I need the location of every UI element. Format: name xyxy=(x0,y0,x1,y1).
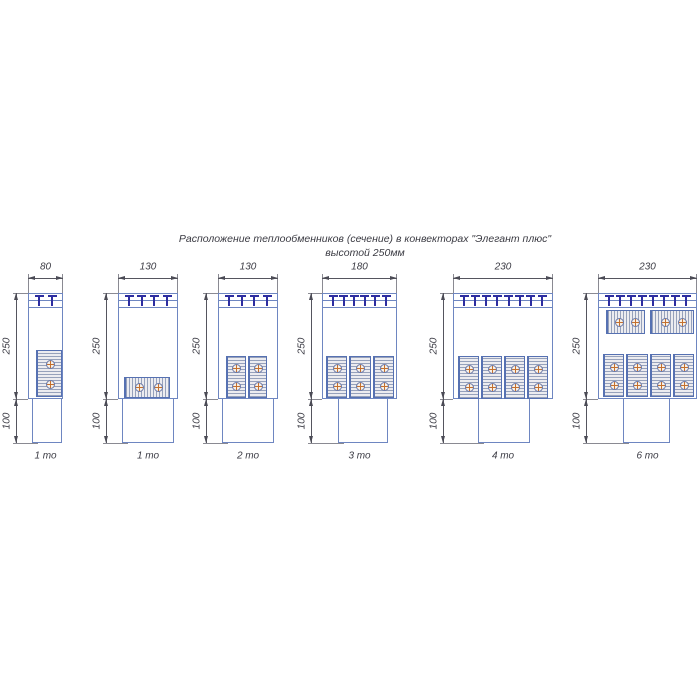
dimension-arrow xyxy=(118,276,125,280)
figure-caption: 1 то xyxy=(137,451,159,462)
duct-channel xyxy=(122,399,174,443)
grille-tee-icon xyxy=(137,295,146,306)
tube-circle xyxy=(615,318,624,327)
tube-circle xyxy=(46,380,55,389)
height-dimension-line xyxy=(16,293,17,399)
heat-exchanger-block xyxy=(606,310,645,334)
figure-caption: 6 то xyxy=(636,451,658,462)
tube-circle xyxy=(46,360,55,369)
extension-line xyxy=(440,443,484,444)
duct-height-label: 100 xyxy=(572,413,583,430)
dimension-arrow xyxy=(104,293,108,300)
grille-line xyxy=(454,307,552,308)
figure-caption: 1 то xyxy=(34,451,56,462)
drawing-title-line1: Расположение теплообменников (сечение) в… xyxy=(30,233,700,245)
dimension-arrow xyxy=(309,392,313,399)
grille-line xyxy=(219,307,277,308)
tube-circle xyxy=(380,382,389,391)
extension-line xyxy=(103,443,128,444)
tube-circle xyxy=(465,365,474,374)
heat-exchanger-block xyxy=(326,356,347,398)
grille-tee-icon xyxy=(682,295,691,306)
grille-tee-icon xyxy=(360,295,369,306)
grille-line xyxy=(599,307,696,308)
tube-circle xyxy=(633,381,642,390)
dimension-arrow xyxy=(322,276,329,280)
grille-tee-icon xyxy=(504,295,513,306)
dimension-arrow xyxy=(171,276,178,280)
width-dimension-label: 80 xyxy=(40,262,51,273)
height-dimension-line xyxy=(311,293,312,399)
width-dimension-line xyxy=(453,278,553,279)
dimension-arrow xyxy=(584,392,588,399)
tube-circle xyxy=(380,364,389,373)
width-dimension-label: 130 xyxy=(140,262,157,273)
duct-channel xyxy=(32,399,62,443)
heat-exchanger-block xyxy=(373,356,394,398)
dimension-arrow xyxy=(390,276,397,280)
heat-exchanger-block xyxy=(603,354,624,397)
width-dimension-line xyxy=(218,278,278,279)
grille-tee-icon xyxy=(339,295,348,306)
grille-tee-icon xyxy=(660,295,669,306)
tube-circle xyxy=(356,364,365,373)
grille-tee-icon xyxy=(605,295,614,306)
duct-channel xyxy=(338,399,388,443)
heat-exchanger-block xyxy=(248,356,268,398)
heat-exchanger-block xyxy=(626,354,647,397)
height-dimension-line xyxy=(586,293,587,399)
grille-tee-icon xyxy=(627,295,636,306)
dimension-arrow xyxy=(441,399,445,406)
grille-line xyxy=(323,307,396,308)
grille-tee-icon xyxy=(150,295,159,306)
grille-tee-icon xyxy=(350,295,359,306)
tube-circle xyxy=(610,381,619,390)
width-dimension-label: 230 xyxy=(495,262,512,273)
extension-line xyxy=(583,443,629,444)
grille-tee-icon xyxy=(35,295,44,306)
tube-circle xyxy=(488,365,497,374)
dimension-arrow xyxy=(218,276,225,280)
dimension-arrow xyxy=(309,436,313,443)
dimension-arrow xyxy=(309,399,313,406)
grille-tee-icon xyxy=(471,295,480,306)
grille-tee-icon xyxy=(225,295,234,306)
drawing-title-line2: высотой 250мм xyxy=(30,247,700,259)
dimension-arrow xyxy=(309,293,313,300)
heat-exchanger-block xyxy=(650,354,671,397)
tube-circle xyxy=(254,382,263,391)
grille-tee-icon xyxy=(263,295,272,306)
body-height-label: 250 xyxy=(572,338,583,355)
grille-tee-icon xyxy=(382,295,391,306)
tube-circle xyxy=(488,383,497,392)
dimension-arrow xyxy=(453,276,460,280)
grille-line xyxy=(29,307,62,308)
grille-tee-icon xyxy=(250,295,259,306)
extension-line xyxy=(308,443,344,444)
grille-tee-icon xyxy=(371,295,380,306)
duct-height-label: 100 xyxy=(297,413,308,430)
grille-tee-icon xyxy=(538,295,547,306)
tube-circle xyxy=(135,383,144,392)
duct-height-label: 100 xyxy=(192,413,203,430)
grille-tee-icon xyxy=(329,295,338,306)
heat-exchanger-block xyxy=(124,377,170,398)
dimension-arrow xyxy=(441,436,445,443)
figure-caption: 3 то xyxy=(348,451,370,462)
dimension-arrow xyxy=(14,293,18,300)
dimension-arrow xyxy=(441,293,445,300)
heat-exchanger-block xyxy=(650,310,694,334)
drawing-canvas: Расположение теплообменников (сечение) в… xyxy=(0,0,700,700)
heat-exchanger-block xyxy=(481,356,502,399)
tube-circle xyxy=(534,383,543,392)
heat-exchanger-block xyxy=(36,350,62,397)
grille-tee-icon xyxy=(237,295,246,306)
tube-circle xyxy=(678,318,687,327)
heat-exchanger-block xyxy=(673,354,694,397)
width-dimension-label: 130 xyxy=(240,262,257,273)
grille-tee-icon xyxy=(125,295,134,306)
grille-tee-icon xyxy=(163,295,172,306)
dimension-arrow xyxy=(204,436,208,443)
dimension-arrow xyxy=(14,392,18,399)
grille-tee-icon xyxy=(616,295,625,306)
dimension-arrow xyxy=(546,276,553,280)
grille-tee-icon xyxy=(638,295,647,306)
figure-caption: 4 то xyxy=(492,451,514,462)
body-height-label: 250 xyxy=(429,338,440,355)
tube-circle xyxy=(661,318,670,327)
grille-tee-icon xyxy=(526,295,535,306)
dimension-arrow xyxy=(584,436,588,443)
dimension-arrow xyxy=(584,399,588,406)
body-height-label: 250 xyxy=(192,338,203,355)
grille-tee-icon xyxy=(460,295,469,306)
dimension-arrow xyxy=(28,276,35,280)
tube-circle xyxy=(633,363,642,372)
dimension-arrow xyxy=(14,399,18,406)
dimension-arrow xyxy=(441,392,445,399)
height-dimension-line xyxy=(206,293,207,399)
duct-channel xyxy=(222,399,274,443)
tube-circle xyxy=(232,364,241,373)
dimension-arrow xyxy=(271,276,278,280)
tube-circle xyxy=(154,383,163,392)
grille-tee-icon xyxy=(482,295,491,306)
tube-circle xyxy=(657,363,666,372)
height-dimension-line xyxy=(106,293,107,399)
heat-exchanger-block xyxy=(226,356,246,398)
width-dimension-line xyxy=(118,278,178,279)
duct-height-label: 100 xyxy=(2,413,13,430)
dimension-arrow xyxy=(598,276,605,280)
dimension-arrow xyxy=(204,399,208,406)
extension-line xyxy=(203,443,228,444)
grille-tee-icon xyxy=(671,295,680,306)
duct-channel xyxy=(623,399,670,443)
body-height-label: 250 xyxy=(2,338,13,355)
tube-circle xyxy=(232,382,241,391)
dimension-arrow xyxy=(14,436,18,443)
height-dimension-line xyxy=(443,293,444,399)
figure-caption: 2 то xyxy=(237,451,259,462)
tube-circle xyxy=(680,363,689,372)
duct-channel xyxy=(478,399,530,443)
tube-circle xyxy=(610,363,619,372)
body-height-label: 250 xyxy=(92,338,103,355)
width-dimension-label: 180 xyxy=(351,262,368,273)
duct-height-label: 100 xyxy=(429,413,440,430)
dimension-arrow xyxy=(104,436,108,443)
width-dimension-line xyxy=(322,278,397,279)
extension-line xyxy=(13,443,38,444)
dimension-arrow xyxy=(204,392,208,399)
width-dimension-label: 230 xyxy=(639,262,656,273)
dimension-arrow xyxy=(204,293,208,300)
tube-circle xyxy=(333,364,342,373)
width-dimension-line xyxy=(598,278,697,279)
tube-circle xyxy=(534,365,543,374)
tube-circle xyxy=(333,382,342,391)
heat-exchanger-block xyxy=(349,356,370,398)
grille-line xyxy=(119,307,177,308)
dimension-arrow xyxy=(104,392,108,399)
tube-circle xyxy=(657,381,666,390)
heat-exchanger-block xyxy=(527,356,548,399)
tube-circle xyxy=(511,383,520,392)
tube-circle xyxy=(680,381,689,390)
dimension-arrow xyxy=(584,293,588,300)
body-height-label: 250 xyxy=(297,338,308,355)
grille-tee-icon xyxy=(48,295,57,306)
tube-circle xyxy=(254,364,263,373)
dimension-arrow xyxy=(690,276,697,280)
duct-height-label: 100 xyxy=(92,413,103,430)
grille-tee-icon xyxy=(493,295,502,306)
tube-circle xyxy=(511,365,520,374)
heat-exchanger-block xyxy=(458,356,479,399)
grille-tee-icon xyxy=(515,295,524,306)
dimension-arrow xyxy=(104,399,108,406)
dimension-arrow xyxy=(56,276,63,280)
tube-circle xyxy=(631,318,640,327)
grille-tee-icon xyxy=(649,295,658,306)
tube-circle xyxy=(356,382,365,391)
tube-circle xyxy=(465,383,474,392)
heat-exchanger-block xyxy=(504,356,525,399)
